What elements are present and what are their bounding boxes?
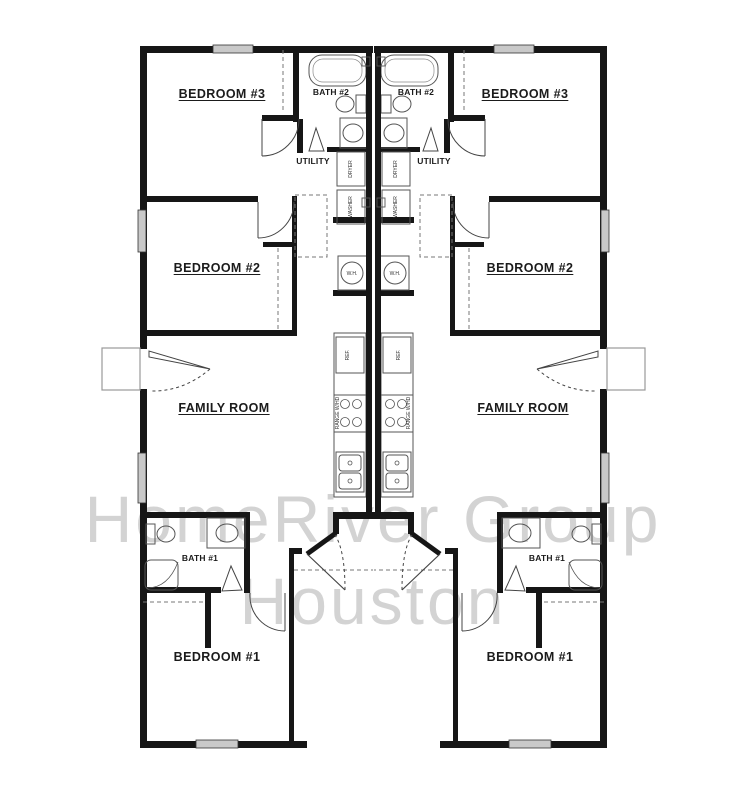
room-label-bath2-right: BATH #2 xyxy=(398,87,434,97)
room-label-utility-left: UTILITY xyxy=(296,156,330,166)
fixture-label-fridge-left: REF. xyxy=(345,350,351,361)
room-label-bath1-left: BATH #1 xyxy=(182,553,218,563)
room-label-bedroom1-right: BEDROOM #1 xyxy=(487,650,574,664)
floorplan-drawing xyxy=(0,0,746,800)
room-label-bath1-right: BATH #1 xyxy=(529,553,565,563)
fixture-label-range-left: RANGE W/HD xyxy=(335,397,341,430)
room-label-bedroom2-left: BEDROOM #2 xyxy=(174,261,261,275)
room-label-bath2-left: BATH #2 xyxy=(313,87,349,97)
room-label-bedroom3-left: BEDROOM #3 xyxy=(179,87,266,101)
room-label-utility-right: UTILITY xyxy=(417,156,451,166)
room-label-bedroom3-right: BEDROOM #3 xyxy=(482,87,569,101)
fixture-label-dryer-right: DRYER xyxy=(393,160,399,177)
fixture-label-washer-left: WASHER xyxy=(348,196,354,218)
fixture-label-water-heater-left: W.H. xyxy=(347,271,358,277)
fixture-label-water-heater-right: W.H. xyxy=(390,271,401,277)
fixture-label-washer-right: WASHER xyxy=(393,196,399,218)
room-label-family-room-right: FAMILY ROOM xyxy=(477,401,568,415)
fixture-label-fridge-right: REF. xyxy=(396,350,402,361)
room-label-bedroom1-left: BEDROOM #1 xyxy=(174,650,261,664)
fixture-label-dryer-left: DRYER xyxy=(348,160,354,177)
room-label-family-room-left: FAMILY ROOM xyxy=(178,401,269,415)
fixture-label-range-right: RANGE W/HD xyxy=(406,397,412,430)
room-label-bedroom2-right: BEDROOM #2 xyxy=(487,261,574,275)
floorplan-image: HomeRiver Group Houston xyxy=(0,0,746,800)
